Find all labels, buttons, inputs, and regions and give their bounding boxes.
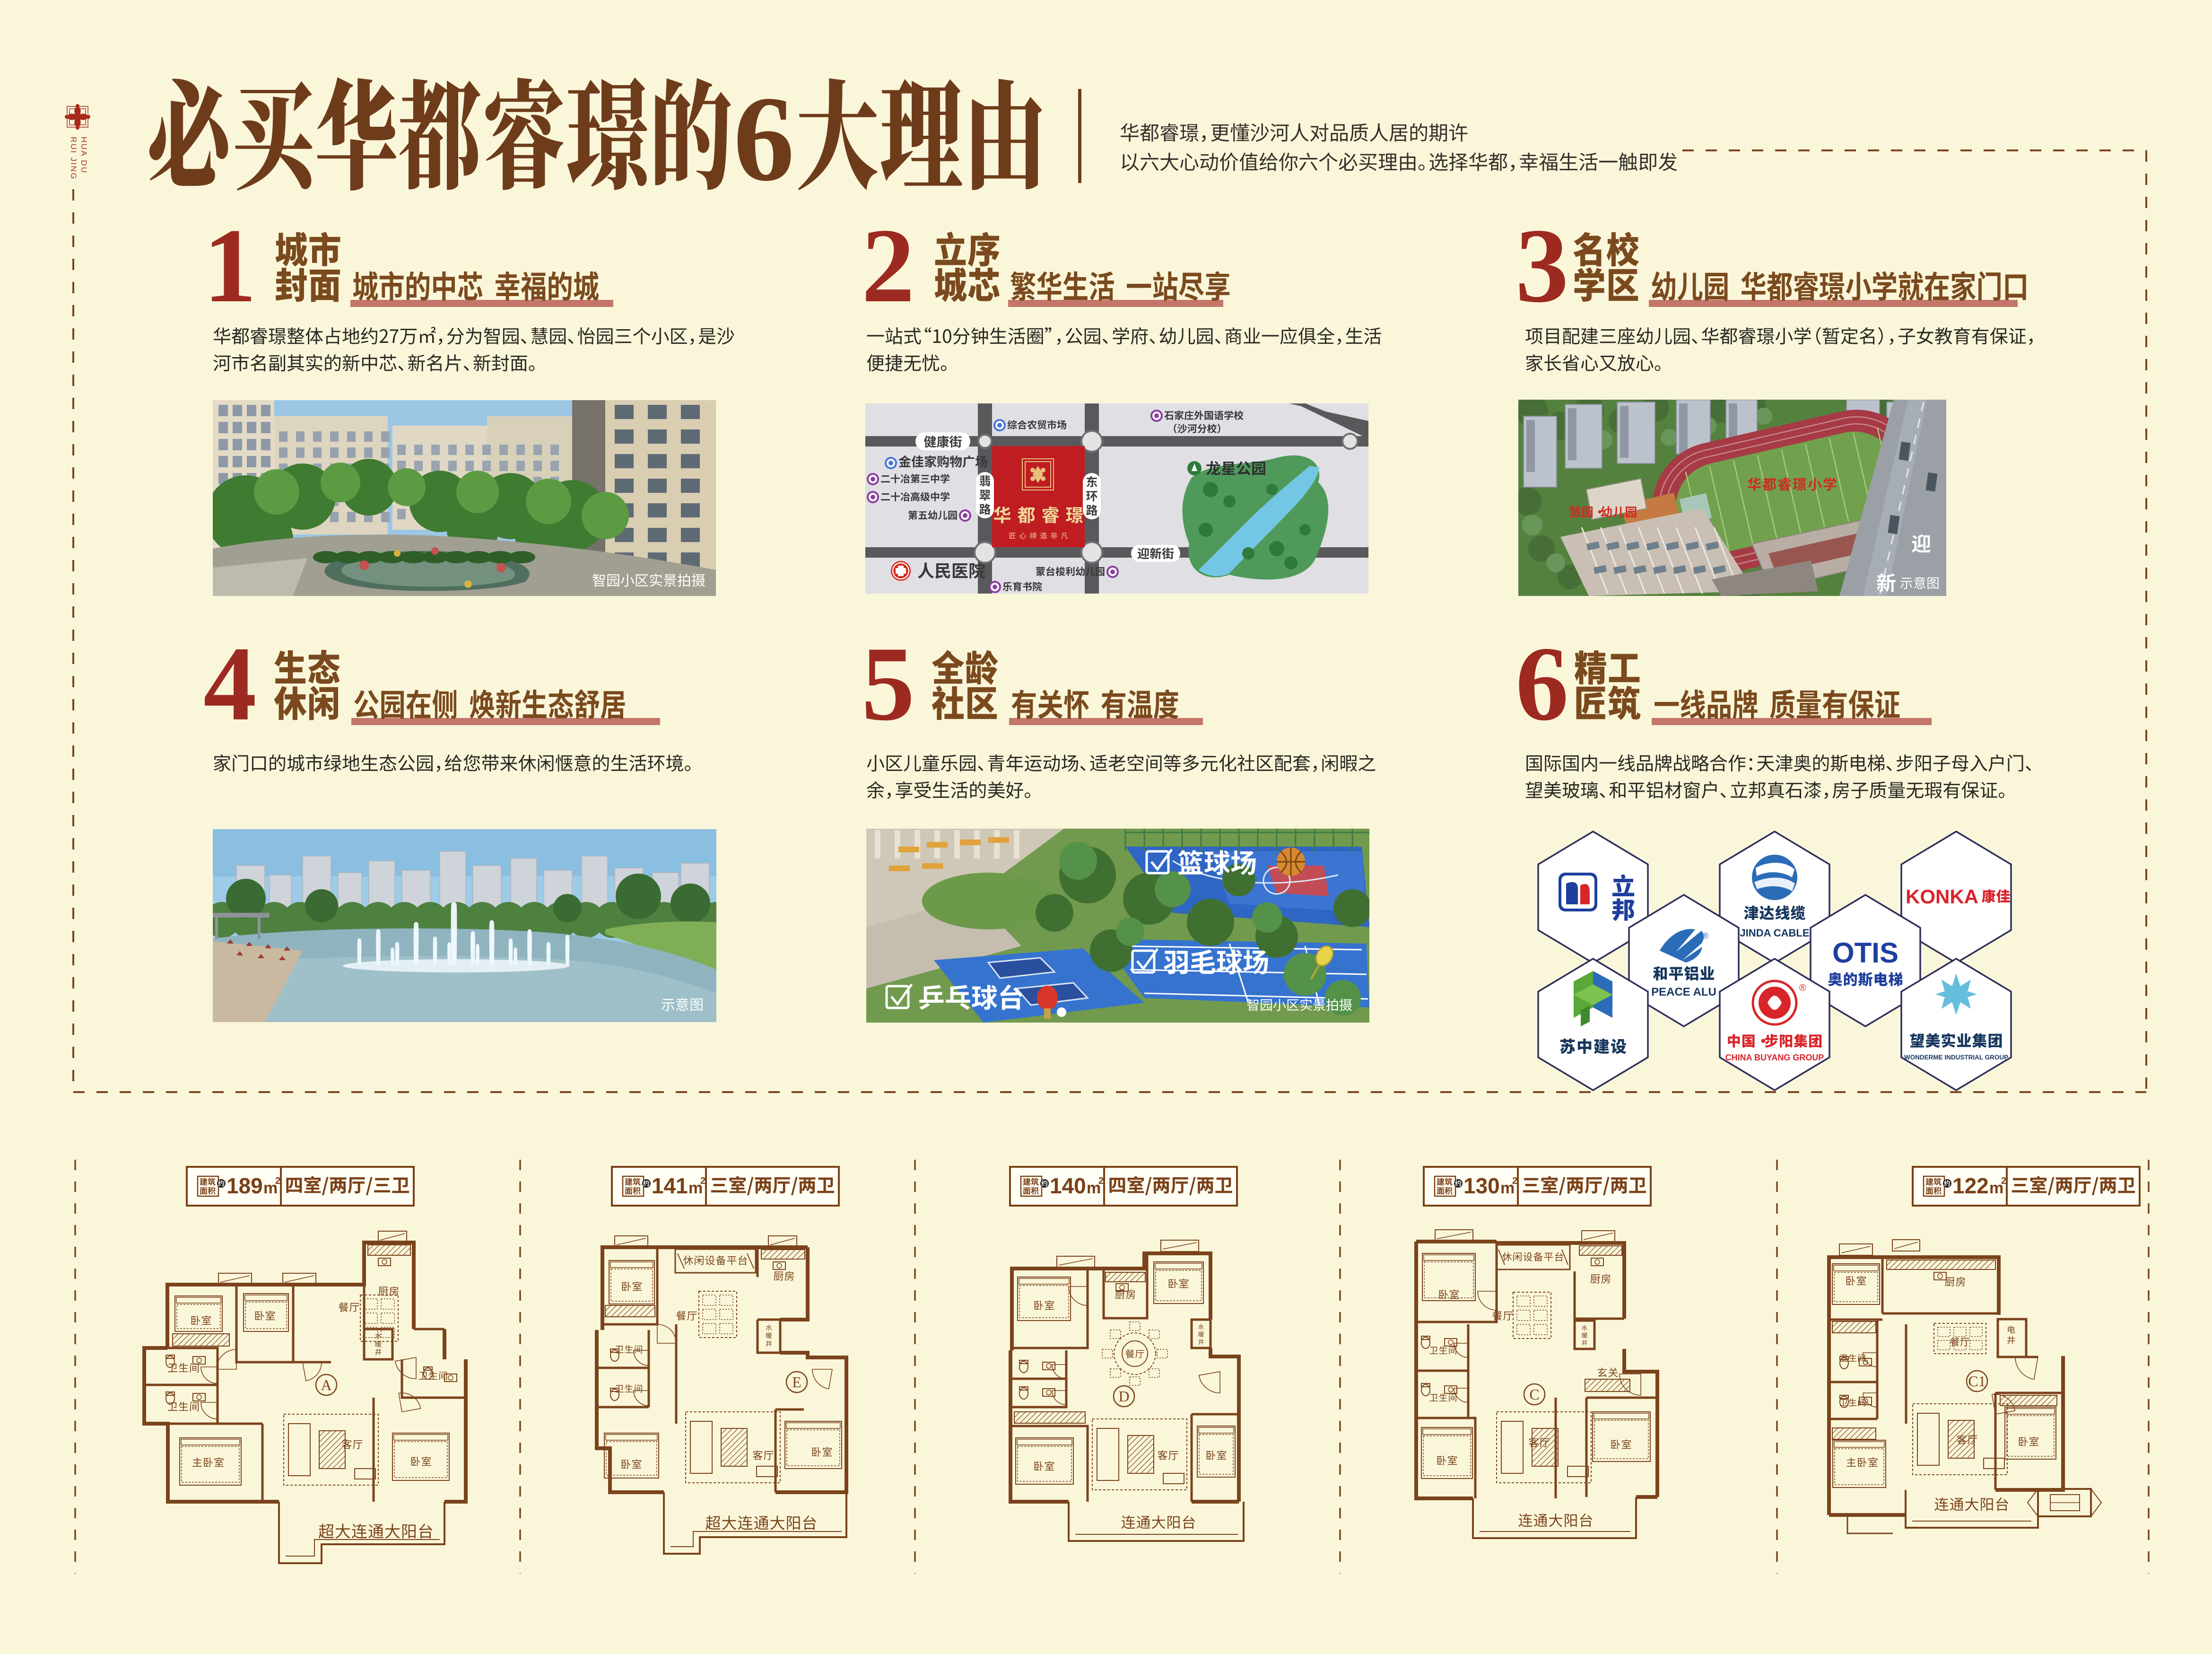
svg-text:HUA DU: HUA DU — [79, 137, 88, 174]
svg-text:CHINA BUYANG GROUP: CHINA BUYANG GROUP — [1725, 1053, 1824, 1062]
svg-text:2: 2 — [275, 1176, 280, 1186]
svg-text:®: ® — [1799, 983, 1806, 993]
svg-text:C1: C1 — [1968, 1373, 1986, 1390]
svg-text:5: 5 — [862, 624, 915, 743]
svg-text:RUI JING: RUI JING — [69, 137, 78, 180]
svg-text:E: E — [792, 1374, 801, 1391]
svg-text:2: 2 — [2001, 1176, 2006, 1186]
svg-text:141: 141 — [652, 1173, 688, 1198]
svg-text:2: 2 — [862, 206, 915, 324]
svg-text:KONKA: KONKA — [1906, 885, 1978, 908]
svg-text:2: 2 — [700, 1176, 705, 1186]
svg-text:189: 189 — [226, 1173, 263, 1198]
svg-text:JINDA CABLE: JINDA CABLE — [1740, 927, 1809, 939]
svg-text:OTIS: OTIS — [1832, 937, 1898, 969]
svg-text:6: 6 — [733, 71, 794, 206]
svg-text:1: 1 — [203, 206, 257, 324]
svg-text:4: 4 — [203, 624, 257, 743]
svg-text:140: 140 — [1050, 1173, 1086, 1198]
svg-text:PEACE ALU: PEACE ALU — [1651, 986, 1716, 998]
svg-text:130: 130 — [1463, 1173, 1500, 1198]
svg-text:122: 122 — [1952, 1173, 1989, 1198]
svg-text:3: 3 — [1515, 206, 1569, 324]
svg-text:A: A — [321, 1376, 331, 1393]
svg-text:WONDERME INDUSTRIAL GROUP: WONDERME INDUSTRIAL GROUP — [1904, 1054, 2008, 1061]
svg-text:2: 2 — [1098, 1176, 1104, 1186]
svg-text:C: C — [1529, 1386, 1539, 1403]
svg-text:D: D — [1118, 1388, 1129, 1405]
svg-text:®: ® — [1702, 931, 1708, 941]
svg-text:6: 6 — [1515, 624, 1569, 743]
svg-text:2: 2 — [1512, 1176, 1517, 1186]
